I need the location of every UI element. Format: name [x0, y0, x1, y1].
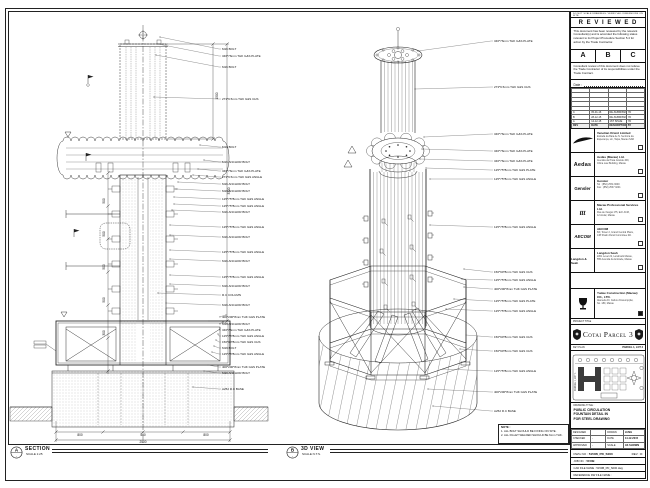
- drawing-fields: DESIGNED DRAWNLUNG CHECKED- DATE14-12-20…: [571, 429, 645, 450]
- company-address-line: Fax : (852) 2537 0201: [597, 186, 643, 189]
- reviewed-stamp-title: R E V I E W E D: [571, 18, 645, 28]
- annotation-label: 400*200*8mm THK G&S PLATE: [494, 390, 537, 394]
- job-no-row: JOB NO. : 5150B: [571, 458, 645, 465]
- aedas-logo-icon: Aedas: [571, 153, 595, 176]
- annotation-label: M16 BOLT: [222, 145, 236, 149]
- project-emblem-icon: [573, 329, 581, 340]
- company-address-line: 138 Shatin Rural Committee Rd.: [597, 234, 643, 237]
- company-checkbox: [638, 193, 644, 199]
- title-rule: [330, 449, 568, 450]
- annotation-label: 346*76mm THK G&S PLATE: [494, 159, 533, 163]
- revision-cell: DATE: [590, 124, 608, 128]
- dimension-label: 500: [102, 264, 106, 270]
- annotation-label: 346*76mm THK G&S PLATE: [494, 132, 533, 136]
- dwg-no-row: DWG NO : 5150B_PD_S000 REV : C: [571, 450, 645, 458]
- review-status-row: A B C: [571, 50, 645, 63]
- annotation-label: M16 ANCHOR BOLT: [222, 210, 250, 214]
- annotation-label: 273*9.5mm THK G&S CHS: [222, 97, 258, 101]
- annotation-label: M16 BOLT: [222, 47, 236, 51]
- annotation-label: 125*75*8mm THK G&S ANGLE: [222, 197, 264, 201]
- section-lower-column: [34, 175, 166, 351]
- title-rule: [330, 452, 568, 453]
- svg-text:B: B: [291, 448, 295, 453]
- annotation-label: 150*90*8mm THK G&S CHS: [222, 340, 260, 344]
- foundation: [10, 371, 268, 427]
- company-checkbox: [638, 265, 644, 271]
- iso-view-drawing: 346*76mm THK G&S PLATE273*9.5mm THK G&S …: [278, 11, 570, 435]
- annotation-label: M16 ANCHOR BOLT: [222, 259, 250, 263]
- dimension-label: 300: [102, 330, 106, 336]
- iso-collar: [344, 133, 430, 178]
- keyplan-h-building: [578, 367, 601, 391]
- company-address-line: 12 Andar, Macau: [597, 214, 643, 217]
- reviewed-paragraph-1: This document has been reviewed by the r…: [571, 28, 645, 50]
- annotation-label: 346*76mm THK G&S PLATE: [222, 169, 261, 173]
- project-name-row: Cotai Parcel 3: [571, 325, 645, 345]
- annotation-label: 400*200*8mm THK G&S PLATE: [222, 315, 265, 319]
- dimension-label: 800: [203, 433, 209, 437]
- annotation-label: 125*75*8mm THK G&S PLATE: [494, 299, 535, 303]
- contractor-name: Yudee Construction (Macau) CO., LTD.: [597, 291, 643, 299]
- annotation-label: 125*75*8mm THK G&S ANGLE: [494, 278, 536, 282]
- annotation-label: 125*75*8mm THK G&S ANGLE: [494, 369, 536, 373]
- company-name: Macau Professional Services Ltd.: [597, 203, 643, 211]
- keyplan-parcel-label: PARCEL 1, LOT 2: [622, 346, 643, 350]
- annotation-label: M16 BOLT: [222, 346, 236, 350]
- svg-text:-: -: [292, 454, 294, 458]
- keyplan-label: KEY PLAN: [573, 346, 585, 350]
- contractor-logo-icon: [571, 289, 595, 318]
- annotation-label: M16 ANCHOR BOLT: [222, 322, 250, 326]
- annotation-label: 346*76mm THK G&S PLATE: [494, 39, 533, 43]
- company-row-aedas: AedasAedas (Macau) Ltd.Avenida da Praia …: [571, 153, 645, 177]
- project-title-label: PROJECT TITLE: [573, 320, 591, 324]
- date-label: Date :: [574, 83, 583, 87]
- company-name: Venetian Orient Limited: [597, 131, 643, 135]
- cad-file: 5150B_PD_S000.dwg: [596, 467, 622, 470]
- company-checkbox: [638, 217, 644, 223]
- annotation-label: 150*90*8mm THK G&S CHS: [494, 335, 532, 339]
- status-a[interactable]: A: [571, 50, 596, 62]
- annotation-label: 125*75*8mm THK G&S ANGLE: [494, 309, 536, 313]
- annotation-label: M16 ANCHOR BOLT: [222, 235, 250, 239]
- dimension-label: 500: [102, 231, 106, 237]
- svg-text:-: -: [16, 454, 18, 458]
- annotation-label: 400*200*8mm THK G&S PLATE: [494, 287, 537, 291]
- revision-table: C05-01-16RE-SUBMISSIONYDB28-12-15RE-SUBM…: [571, 88, 645, 129]
- keyplan-star-plaza: [627, 371, 641, 385]
- venetian-logo-icon: [571, 129, 595, 152]
- keyplan-parcel-left-label: PARCEL 1, LOT 1: [574, 372, 577, 391]
- company-name: AECOM: [597, 227, 643, 231]
- company-address-line: 555 Avenida da Amizade, Macau: [597, 258, 643, 261]
- drawing-title-label: DRAWING TITLE :: [574, 404, 643, 407]
- dimension-label: 500: [140, 433, 146, 437]
- annotation-label: 346*76mm THK G&S PLATE: [222, 328, 261, 332]
- note-items: 1. ALL BOLT SHOULD BE FIXING ON SITE.2. …: [501, 430, 566, 438]
- annotation-label: M16 ANCHOR BOLT: [222, 303, 250, 307]
- keyplan-map: PARCEL 1, LOT 1: [571, 351, 645, 403]
- annotation-label: 125*75*8mm THK G&S ANGLE: [222, 334, 264, 338]
- company-row-aecom: AECOMAECOM8/F, Tower 2, Grand Central Pl…: [571, 225, 645, 249]
- company-row-venetian: Venetian Orient LimitedEstrada da Baía d…: [571, 129, 645, 153]
- iso-pipe-cluster: [381, 61, 415, 133]
- drawing-title-lines: PUBLIC CIRCULATIONFOUNTAIN DETAIL INFOR …: [574, 408, 643, 422]
- company-row-gensler: GenslerGenslerTel : (852) 2531 9000Fax :…: [571, 177, 645, 201]
- annotation-label: 125*75*8mm THK G&S ANGLE: [222, 352, 264, 356]
- dimension-label: 500: [102, 198, 106, 204]
- dwg-no: 5150B_PD_S000: [589, 452, 613, 456]
- mps-logo-icon: ttt: [571, 201, 595, 224]
- iso-cylinder: [362, 169, 434, 335]
- survey-markers: [61, 75, 94, 317]
- section-bubble-icon: A -: [10, 446, 23, 459]
- annotation-label: A252 R.C BASE: [222, 387, 244, 391]
- company-name: Aedas (Macau) Ltd.: [597, 155, 643, 159]
- annotation-label: A252 R.C BASE: [494, 409, 516, 413]
- contractor-checkbox: [638, 311, 644, 317]
- reviewed-paragraph-2: Consultant review of this document does …: [571, 63, 645, 80]
- section-view-label: A - SECTION SCALE 1:25: [10, 446, 50, 459]
- company-checkbox: [638, 169, 644, 175]
- dimension-label: 500: [102, 297, 106, 303]
- gensler-logo-icon: Gensler: [571, 177, 595, 200]
- annotation-label: M16 ANCHOR BOLT: [222, 182, 250, 186]
- company-row-langdonseah: Langdon & SeahLangdon Seah2201 Level 22,…: [571, 249, 645, 273]
- revision-cell: REV: [572, 124, 590, 128]
- note-item: 2. ALL FILLET WELDED SHOULD BE 6mm THK.: [501, 434, 566, 438]
- drawing-title-line: FOR STEEL DRAWING: [574, 417, 643, 422]
- company-row-mps: tttMacau Professional Services Ltd.Rua d…: [571, 201, 645, 225]
- annotation-label: 273*9.5mm THK G&S CHS: [494, 85, 530, 89]
- company-name: Gensler: [597, 179, 643, 183]
- cad-file-row: CAD FILE NAME : 5150B_PD_S000.dwg: [571, 465, 645, 472]
- annotation-label: 346*76mm THK G&S PLATE: [222, 54, 261, 58]
- job-no: 5150B: [587, 460, 595, 463]
- annotation-label: M16 BOLT: [222, 65, 236, 69]
- iso-bubble-icon: B -: [286, 446, 299, 459]
- company-checkbox: [638, 241, 644, 247]
- date-fill-line[interactable]: [584, 82, 642, 87]
- status-c[interactable]: C: [621, 50, 645, 62]
- annotation-label: M16 ANCHOR BOLT: [222, 371, 250, 375]
- rev-value: C: [640, 452, 642, 456]
- empty-company-row: [571, 273, 645, 289]
- annotation-label: 346*76mm THK G&S PLATE: [494, 149, 533, 153]
- svg-text:A: A: [15, 448, 19, 453]
- annotation-label: 150*90*8mm THK G&S CHS: [494, 349, 532, 353]
- contractor-line: No. 180, Macau: [597, 302, 643, 305]
- drawing-sheet-page: M16 BOLT346*76mm THK G&S PLATEM16 BOLT27…: [0, 0, 650, 488]
- annotation-label: 125*75*8mm THK G&S PLATE: [494, 168, 535, 172]
- notes-box: NOTE : 1. ALL BOLT SHOULD BE FIXING ON S…: [498, 424, 569, 444]
- langdonseah-logo-icon: Langdon & Seah: [571, 249, 595, 272]
- annotation-label: 125*75*8mm THK G&S ANGLE: [222, 275, 264, 279]
- revision-cell: DESCRIPTION: [608, 124, 626, 128]
- annotation-label: 125*75*8mm THK G&S ANGLE: [494, 225, 536, 229]
- iso-view-label: B - 3D VIEW SCALE N.T.S.: [286, 446, 324, 459]
- ref-file-row: REFERENCE DW FILE NAME :: [571, 472, 645, 479]
- review-date-row: Date :: [571, 80, 645, 88]
- title-rule: [52, 449, 268, 450]
- annotation-label: M16 ANCHOR BOLT: [222, 284, 250, 288]
- annotation-label: 150*90*8mm THK G&S CHS: [494, 270, 532, 274]
- dimension-label: 800: [77, 433, 83, 437]
- keyplan-grid-blocks: [604, 368, 626, 390]
- status-b[interactable]: B: [596, 50, 621, 62]
- company-address-line: China Law Building, Macau: [597, 162, 643, 165]
- dimension-label: 1500: [215, 92, 219, 99]
- title-block: DO NOT SCALE DRAWINGS. VERIFY ALL DIMENS…: [570, 11, 646, 479]
- aecom-logo-icon: AECOM: [571, 225, 595, 248]
- annotation-label: 125*75*8mm THK G&S ANGLE: [494, 177, 536, 181]
- section-view-scale: SCALE 1:25: [26, 452, 50, 456]
- dimension-label: 3300: [227, 187, 231, 194]
- project-name: Cotai Parcel 3: [583, 330, 633, 339]
- contractor-block: Yudee Construction (Macau) CO., LTD. Ala…: [571, 289, 645, 319]
- keyplan-trees: [578, 358, 637, 361]
- annotation-label: M16 ANCHOR BOLT: [222, 160, 250, 164]
- iso-annotations: 346*76mm THK G&S PLATE273*9.5mm THK G&S …: [414, 39, 537, 413]
- company-checkbox: [638, 145, 644, 151]
- annotation-label: R.C COLUMN: [222, 293, 241, 297]
- project-emblem-icon: [635, 329, 643, 340]
- drawing-title-block: DRAWING TITLE : PUBLIC CIRCULATIONFOUNTA…: [571, 403, 645, 429]
- title-rule: [52, 452, 268, 453]
- annotation-label: 400*200*8mm THK G&S PLATE: [222, 365, 265, 369]
- annotation-label: 125*75*8mm THK G&S ANGLE: [222, 225, 264, 229]
- company-address-line: Esperança, s/n, Taipa, Macau SAR: [597, 138, 643, 141]
- iso-top-plate: [374, 27, 422, 63]
- dimension-label: 2500: [139, 440, 146, 444]
- company-name: Langdon Seah: [597, 251, 643, 255]
- iso-view-scale: SCALE N.T.S.: [302, 452, 324, 456]
- revision-cell: BY: [626, 124, 644, 128]
- annotation-label: 125*75*8mm THK G&S ANGLE: [222, 250, 264, 254]
- annotation-label: 273*9.5mm THK G&S ANGLE: [222, 175, 262, 179]
- annotation-label: 125*75*8mm THK G&S ANGLE: [222, 204, 264, 208]
- section-view-drawing: M16 BOLT346*76mm THK G&S PLATEM16 BOLT27…: [8, 11, 270, 445]
